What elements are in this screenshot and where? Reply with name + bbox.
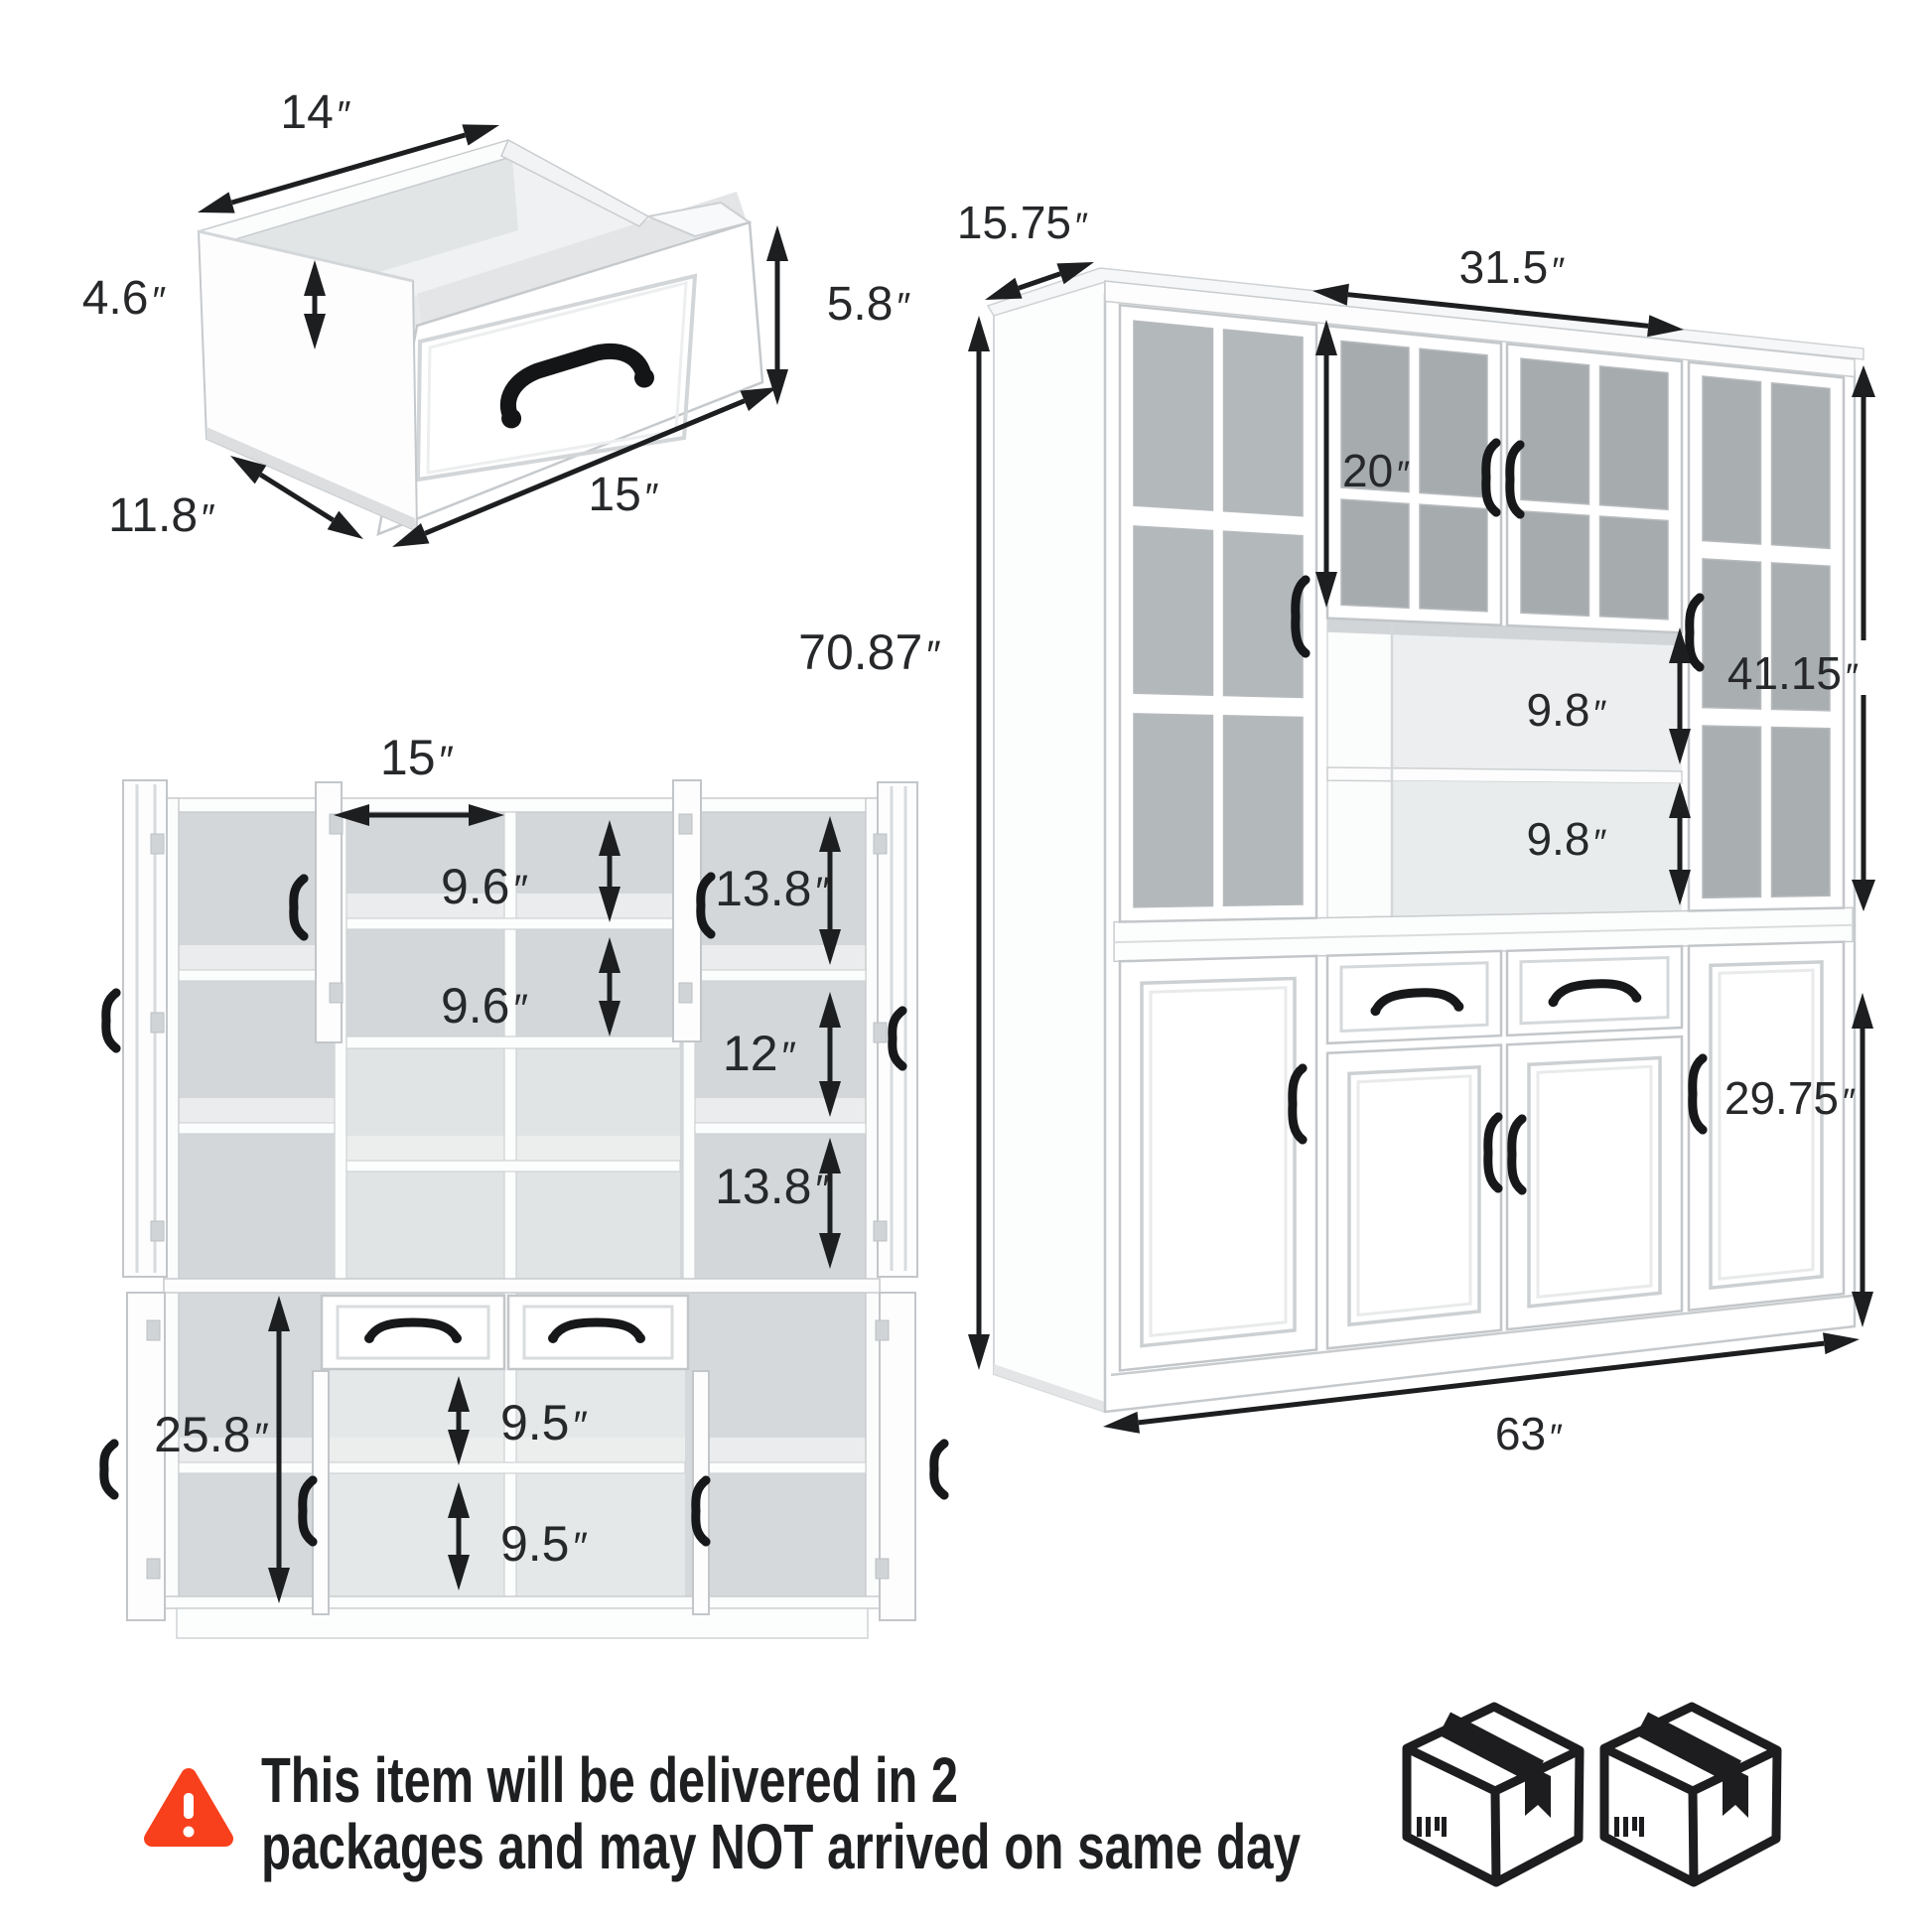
svg-text:9.5″: 9.5″ [500,1395,588,1450]
svg-text:9.6″: 9.6″ [441,978,528,1034]
svg-text:41.15″: 41.15″ [1727,647,1859,699]
svg-text:15″: 15″ [588,469,658,521]
svg-text:9.6″: 9.6″ [441,859,528,914]
svg-text:70.87″: 70.87″ [798,624,941,680]
svg-text:15″: 15″ [380,730,454,785]
svg-text:5.8″: 5.8″ [827,278,911,331]
svg-text:14″: 14″ [280,86,350,139]
svg-text:4.6″: 4.6″ [82,272,167,325]
svg-text:9.5″: 9.5″ [500,1516,588,1572]
svg-text:15.75″: 15.75″ [957,197,1088,248]
svg-text:12″: 12″ [723,1026,796,1081]
svg-text:This item will be delivered in: This item will be delivered in 2 [261,1744,958,1816]
svg-text:29.75″: 29.75″ [1725,1072,1856,1124]
svg-text:packages and may NOT arrived o: packages and may NOT arrived on same day [261,1811,1301,1882]
